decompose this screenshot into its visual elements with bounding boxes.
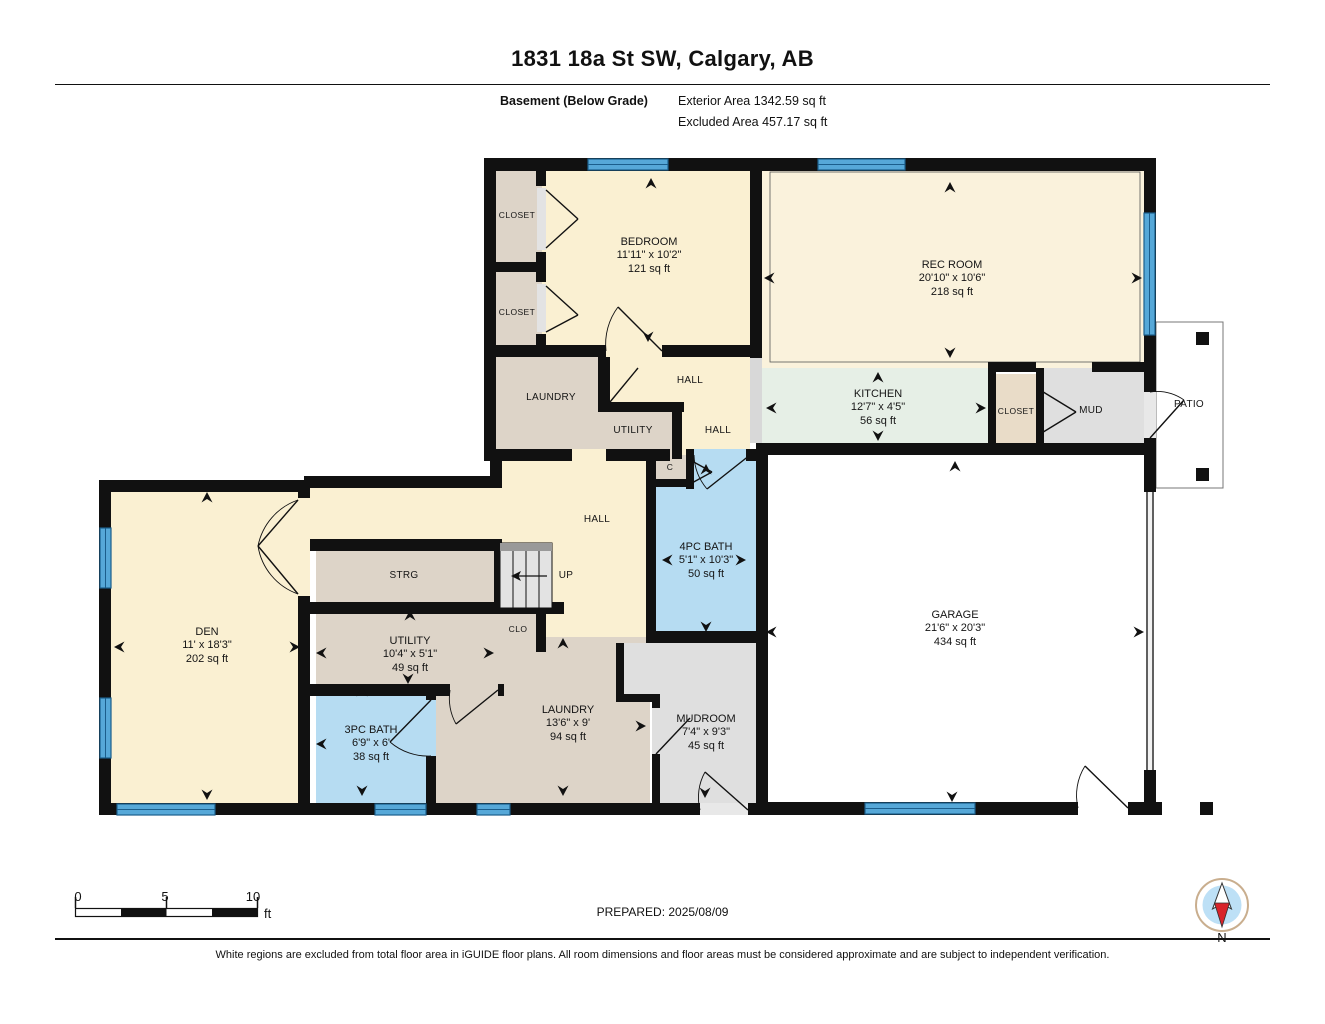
room-label-garage: GARAGE 21'6" x 20'3" 434 sq ft bbox=[925, 609, 985, 649]
room-label-mudroom: MUDROOM 7'4" x 9'3" 45 sq ft bbox=[676, 713, 735, 753]
room-label-laundry-upper: LAUNDRY bbox=[526, 392, 576, 404]
room-label-hall-mid: HALL bbox=[705, 425, 731, 437]
room-label-bath-4pc: 4PC BATH 5'1" x 10'3" 50 sq ft bbox=[679, 541, 733, 581]
room-label-rec-room: REC ROOM 20'10" x 10'6" 218 sq ft bbox=[919, 259, 985, 299]
floorplan-page: 1831 18a St SW, Calgary, AB Basement (Be… bbox=[0, 0, 1325, 1024]
disclaimer-text: White regions are excluded from total fl… bbox=[0, 949, 1325, 961]
room-label-up: UP bbox=[559, 570, 574, 582]
scale-tick-0: 0 bbox=[74, 889, 81, 904]
room-label-utility-lower: UTILITY 10'4" x 5'1" 49 sq ft bbox=[383, 635, 437, 675]
room-label-den: DEN 11' x 18'3" 202 sq ft bbox=[182, 626, 232, 666]
room-label-bedroom: BEDROOM 11'11" x 10'2" 121 sq ft bbox=[617, 236, 682, 276]
room-label-strg: STRG bbox=[390, 570, 419, 582]
room-label-closet-bottom: CLOSET bbox=[499, 307, 535, 317]
stairs bbox=[500, 543, 552, 608]
room-label-utility-upper: UTILITY bbox=[613, 425, 652, 437]
room-label-bath-3pc: 3PC BATH 6'9" x 6' 38 sq ft bbox=[345, 724, 398, 764]
room-label-mud: MUD bbox=[1079, 405, 1103, 417]
room-label-hall-upper: HALL bbox=[677, 375, 703, 387]
room-label-c-closet: C bbox=[667, 462, 674, 472]
room-label-clo: CLO bbox=[509, 624, 528, 634]
room-label-laundry-lower: LAUNDRY 13'6" x 9' 94 sq ft bbox=[542, 704, 594, 744]
footer-divider bbox=[55, 938, 1270, 940]
room-label-hall-center: HALL bbox=[584, 514, 610, 526]
room-label-closet-kitchen: CLOSET bbox=[998, 406, 1034, 416]
room-label-kitchen: KITCHEN 12'7" x 4'5" 56 sq ft bbox=[851, 388, 905, 428]
floorplan-svg bbox=[0, 0, 1325, 1024]
room-label-patio: PATIO bbox=[1174, 399, 1204, 411]
prepared-date: PREPARED: 2025/08/09 bbox=[0, 905, 1325, 919]
scale-tick-5: 5 bbox=[161, 889, 168, 904]
scale-tick-10: 10 bbox=[246, 889, 260, 904]
room-label-closet-top: CLOSET bbox=[499, 210, 535, 220]
